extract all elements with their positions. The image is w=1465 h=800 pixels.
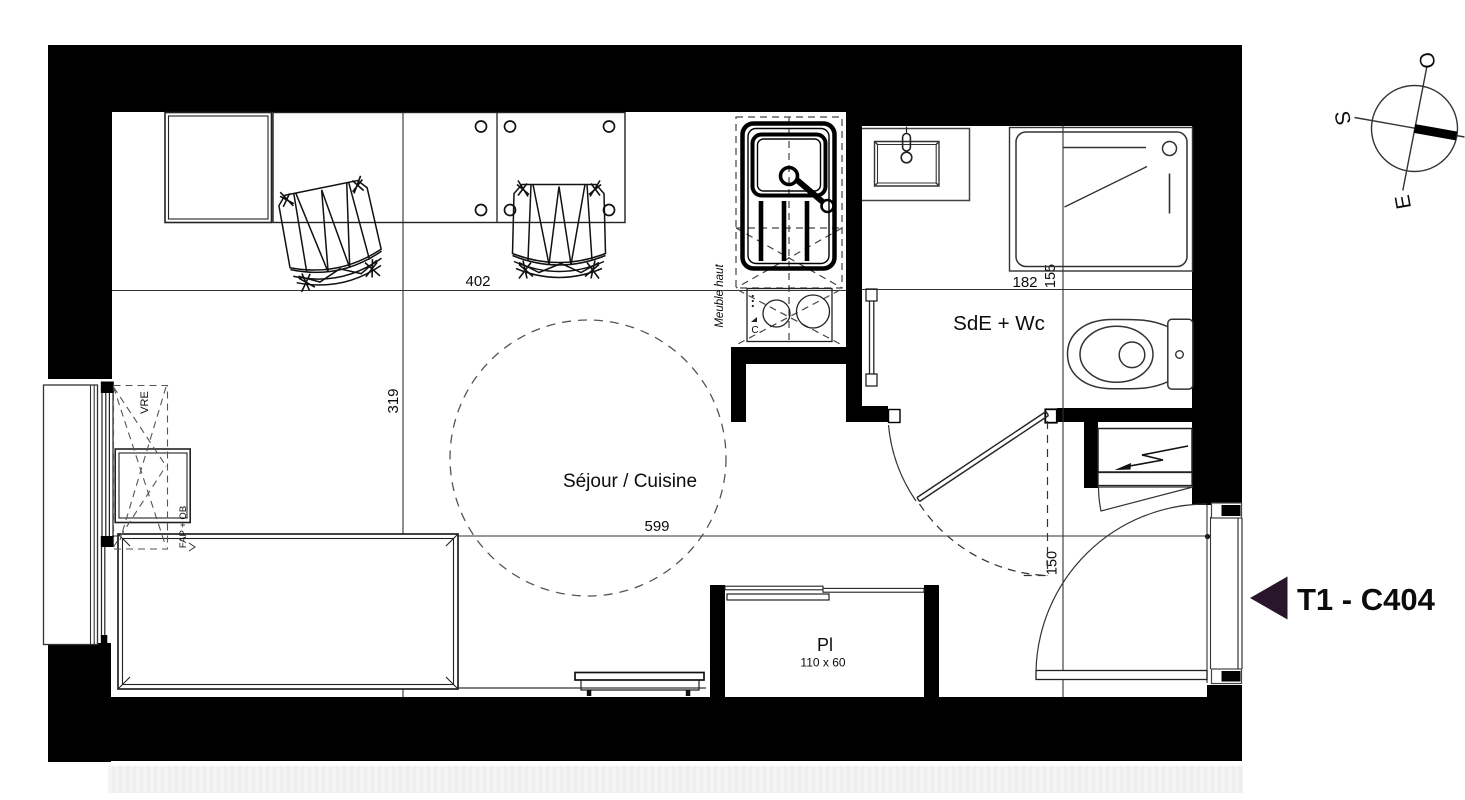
svg-text:319: 319 — [385, 388, 402, 413]
svg-text:T1 - C404: T1 - C404 — [1297, 582, 1436, 617]
svg-text:C: C — [751, 325, 758, 336]
svg-text:Séjour / Cuisine: Séjour / Cuisine — [563, 471, 697, 492]
svg-text:O: O — [1414, 50, 1439, 70]
svg-text:Meuble haut: Meuble haut — [714, 264, 726, 328]
svg-text:599: 599 — [644, 518, 669, 535]
svg-text:110 x 60: 110 x 60 — [800, 656, 845, 670]
svg-text:155: 155 — [1043, 264, 1059, 288]
svg-text:Pl: Pl — [817, 635, 833, 655]
svg-text:182: 182 — [1012, 274, 1037, 291]
svg-text:VRE: VRE — [139, 391, 151, 414]
svg-text:402: 402 — [465, 273, 490, 290]
svg-text:FAP + OB: FAP + OB — [178, 506, 189, 548]
svg-text:SdE + Wc: SdE + Wc — [953, 312, 1045, 335]
svg-text:E: E — [1391, 193, 1416, 211]
svg-text:S: S — [1329, 109, 1354, 127]
